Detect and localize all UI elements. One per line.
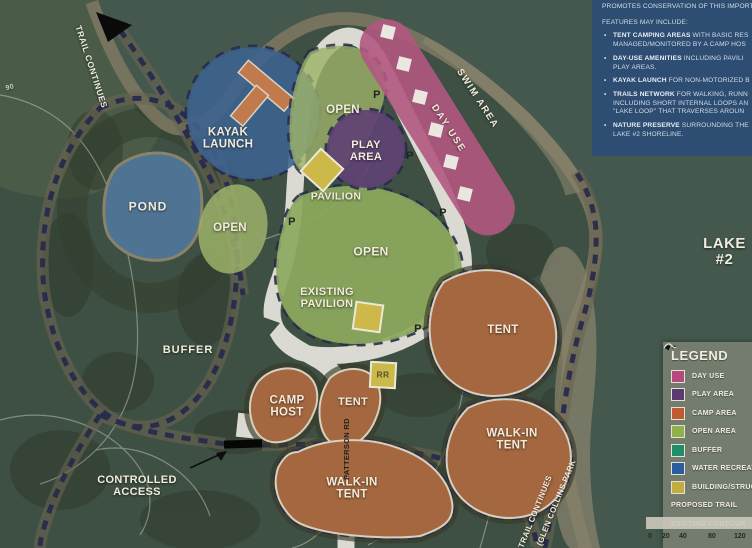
- info-bullet: •TRAILS NETWORK FOR WALKING, RUNN: [602, 91, 752, 100]
- open-left-label: OPEN: [213, 222, 247, 234]
- legend-item-building: BUILDING/STRUCTURE: [671, 478, 752, 497]
- info-line: LAKE #2 SHORELINE.: [602, 131, 752, 140]
- legend-item-day-use: DAY USE: [671, 367, 752, 386]
- info-bullet: •KAYAK LAUNCH FOR NON-MOTORIZED B: [602, 77, 752, 86]
- open-center-label: OPEN: [353, 246, 388, 259]
- patterson-rd-label: PATTERSON RD: [343, 418, 351, 480]
- pond-label: POND: [129, 201, 168, 214]
- scale-tick: 40: [679, 533, 687, 540]
- site-plan-map: TRAIL CONTINUES 90 KAYAK LAUNCH POND OPE…: [0, 0, 752, 548]
- parking-marker: P: [439, 208, 447, 220]
- legend-item-water-recreation: WATER RECREATION: [671, 460, 752, 479]
- scale-bar: [646, 517, 752, 529]
- walk-in-tent-right-label: WALK-IN TENT: [486, 428, 537, 453]
- info-line: INCLUDING SHORT INTERNAL LOOPS AN: [602, 100, 752, 109]
- building-swatch: [671, 481, 685, 494]
- lake-2-label: LAKE #2: [697, 236, 752, 268]
- parking-marker: P: [288, 217, 296, 229]
- open-area-swatch: [671, 425, 685, 438]
- parking-marker: P: [373, 90, 381, 102]
- features-info-box: PROMOTES CONSERVATION OF THIS IMPORT FEA…: [592, 0, 752, 156]
- tent-mid-label: TENT: [338, 397, 368, 409]
- play-area-swatch: [671, 388, 685, 401]
- buffer-swatch: [671, 444, 685, 457]
- info-bullet: •NATURE PRESERVE SURROUNDING THE: [602, 122, 752, 131]
- tent-right-label: TENT: [487, 324, 518, 336]
- camp-host-label: CAMP HOST: [269, 395, 304, 420]
- existing-contour-icon: [663, 342, 677, 350]
- play-area-label: PLAY AREA: [350, 140, 382, 164]
- legend-item-proposed-trail: PROPOSED TRAIL: [671, 497, 752, 516]
- scale-tick: 20: [662, 533, 670, 540]
- open-top-label: OPEN: [326, 104, 360, 116]
- buffer-label: BUFFER: [163, 345, 214, 357]
- info-line: "LAKE LOOP" THAT TRAVERSES AROUN: [602, 108, 752, 117]
- info-line: MANAGED/MONITORED BY A CAMP HOS: [602, 41, 752, 50]
- legend-item-camp-area: CAMP AREA: [671, 404, 752, 423]
- scale-tick: 0: [648, 533, 652, 540]
- restroom-label: RR: [377, 370, 390, 379]
- info-bullet: •DAY-USE AMENITIES INCLUDING PAVILI: [602, 55, 752, 64]
- info-line: PLAY AREAS.: [602, 64, 752, 73]
- legend-item-play-area: PLAY AREA: [671, 386, 752, 405]
- day-use-swatch: [671, 370, 685, 383]
- legend-item-buffer: BUFFER: [671, 441, 752, 460]
- info-line: FEATURES MAY INCLUDE:: [602, 19, 752, 28]
- camp-area-swatch: [671, 407, 685, 420]
- access-gate: [224, 439, 262, 448]
- walk-in-tent-bottom-label: WALK-IN TENT: [326, 477, 377, 502]
- legend-title: LEGEND: [671, 348, 752, 363]
- controlled-access-label: CONTROLLED ACCESS: [97, 475, 176, 499]
- kayak-launch-label: KAYAK LAUNCH: [203, 127, 253, 152]
- existing-pavilion-label: EXISTING PAVILION: [300, 287, 354, 311]
- info-line: PROMOTES CONSERVATION OF THIS IMPORT: [602, 3, 752, 12]
- water-recreation-swatch: [671, 462, 685, 475]
- scale-tick: 120: [734, 533, 746, 540]
- parking-marker: P: [406, 151, 414, 163]
- scale-tick: 80: [708, 533, 716, 540]
- info-bullet: •TENT CAMPING AREAS WITH BASIC RES: [602, 32, 752, 41]
- pavilion-label: PAVILION: [311, 191, 361, 202]
- existing-pavilion-building: [353, 302, 383, 332]
- parking-marker: P: [414, 324, 422, 336]
- legend-item-open-area: OPEN AREA: [671, 423, 752, 442]
